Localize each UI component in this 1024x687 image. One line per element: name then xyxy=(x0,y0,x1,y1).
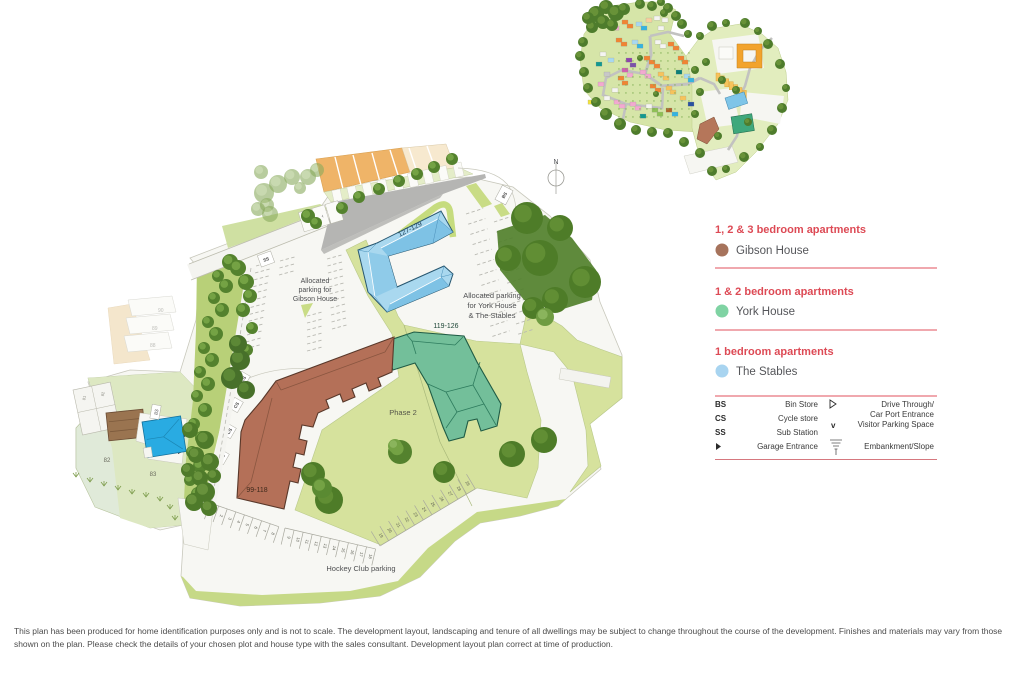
svg-text:Garage Entrance: Garage Entrance xyxy=(757,442,818,451)
svg-text:1, 2 & 3 bedroom apartments: 1, 2 & 3 bedroom apartments xyxy=(715,224,866,236)
svg-text:Allocated parking: Allocated parking xyxy=(463,291,521,300)
svg-text:Car Port Entrance: Car Port Entrance xyxy=(870,410,935,419)
svg-text:CS: CS xyxy=(715,414,727,423)
svg-text:N: N xyxy=(553,159,558,166)
svg-text:BS: BS xyxy=(715,400,727,409)
svg-text:& The Stables: & The Stables xyxy=(469,311,516,320)
svg-text:SS: SS xyxy=(715,428,726,437)
svg-text:Gibson House: Gibson House xyxy=(736,245,809,257)
svg-text:v: v xyxy=(831,421,836,430)
svg-text:Sub Station: Sub Station xyxy=(777,428,818,437)
svg-text:parking for: parking for xyxy=(298,287,332,294)
svg-text:90: 90 xyxy=(158,308,164,314)
svg-text:88: 88 xyxy=(150,343,156,349)
svg-text:for York House: for York House xyxy=(467,301,516,310)
svg-text:Allocated: Allocated xyxy=(301,278,330,285)
svg-text:99-118: 99-118 xyxy=(246,487,267,494)
svg-text:This plan has been produced fo: This plan has been produced for home ide… xyxy=(14,626,1002,636)
svg-text:Hockey Club parking: Hockey Club parking xyxy=(326,564,395,573)
svg-text:Bin Store: Bin Store xyxy=(785,400,818,409)
svg-text:1 bedroom apartments: 1 bedroom apartments xyxy=(715,346,834,358)
svg-text:1 & 2 bedroom apartments: 1 & 2 bedroom apartments xyxy=(715,286,854,298)
svg-text:82: 82 xyxy=(104,458,111,464)
svg-text:Drive Through/: Drive Through/ xyxy=(881,400,935,409)
svg-text:Phase 2: Phase 2 xyxy=(389,408,417,417)
svg-text:Visitor Parking Space: Visitor Parking Space xyxy=(858,420,935,429)
svg-text:119-126: 119-126 xyxy=(433,323,458,330)
svg-text:83: 83 xyxy=(150,472,157,478)
svg-text:Embankment/Slope: Embankment/Slope xyxy=(864,442,934,451)
svg-text:Cycle store: Cycle store xyxy=(778,414,819,423)
svg-text:York House: York House xyxy=(736,306,795,318)
svg-text:The Stables: The Stables xyxy=(736,366,798,378)
svg-text:Gibson House: Gibson House xyxy=(293,296,337,303)
svg-text:shown on the plan. Please chec: shown on the plan. Please check the deta… xyxy=(14,639,613,649)
svg-text:89: 89 xyxy=(152,326,158,332)
